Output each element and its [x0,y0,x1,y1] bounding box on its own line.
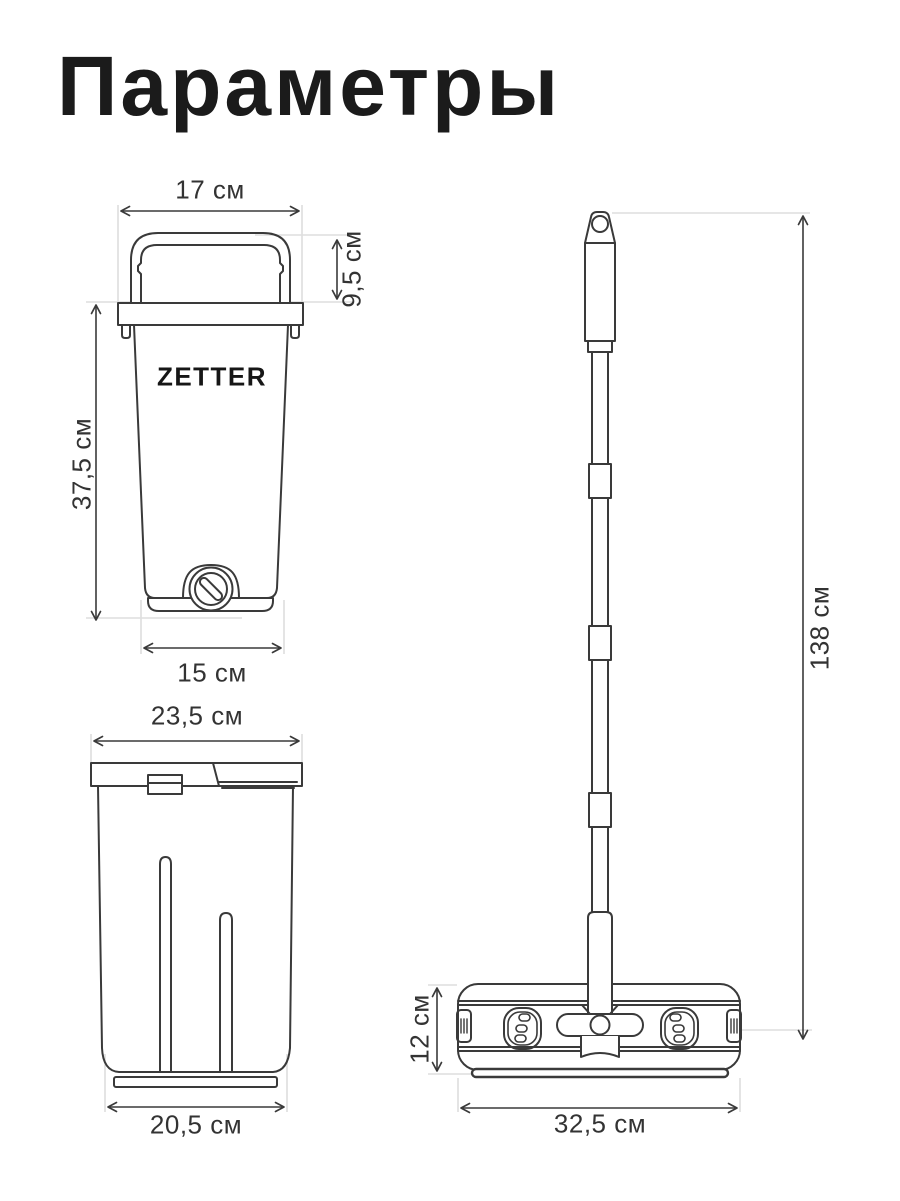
mop-grip [585,243,615,341]
technical-diagram [0,0,900,1201]
mop-shaft [588,912,612,1016]
dim-label-bucket-top-width: 17 см [175,175,245,206]
mop-grip-collar [588,341,612,352]
dim-label-mop-head-height: 12 см [405,994,436,1064]
side-body [98,786,293,1072]
mop-pole-joint-2 [589,626,611,660]
dim-label-bucket-handle-height: 9,5 см [337,230,368,307]
mop-view [457,212,741,1077]
product-dimensions-infographic: Параметры ZETTER 17 см 9,5 см 37,5 см 15… [0,0,900,1201]
side-rim-split [213,763,219,786]
dim-label-bucket-bottom-width: 15 см [177,658,247,689]
mop-hinge-skirt [581,1036,619,1057]
bucket-front-view [118,233,303,611]
side-slot-short [220,913,232,1072]
mop-pole-joint-1 [589,464,611,498]
brand-logo: ZETTER [157,362,267,393]
dim-label-bucket-height: 37,5 см [67,418,98,510]
side-latch [148,775,182,794]
bucket-rim-tab-left [122,325,130,338]
bucket-rim-tab-right [291,325,299,338]
mop-pad [472,1069,728,1077]
dim-label-bucket-side-top-width: 23,5 см [151,701,243,732]
dim-label-bucket-side-bottom-width: 20,5 см [150,1110,242,1141]
mop-pole-upper [592,352,608,464]
mop-pole-joint-3 [589,793,611,827]
mop-pole-mid-2 [592,660,608,793]
page-title: Параметры [57,40,561,132]
mop-pole-mid-1 [592,498,608,626]
side-base-plate [114,1077,277,1087]
drain-valve-inner [195,573,227,605]
mop-hinge-pivot [591,1016,610,1035]
mop-pole-lower [592,827,608,913]
bucket-side-view [91,763,302,1087]
dim-label-mop-head-width: 32,5 см [554,1109,646,1140]
bucket-handle-outer [131,233,290,303]
side-slot-tall [160,857,171,1072]
mop-hang-hole [592,216,608,232]
bucket-rim [118,303,303,325]
bucket-handle-inner [138,245,283,303]
dim-label-mop-height: 138 см [805,586,836,670]
